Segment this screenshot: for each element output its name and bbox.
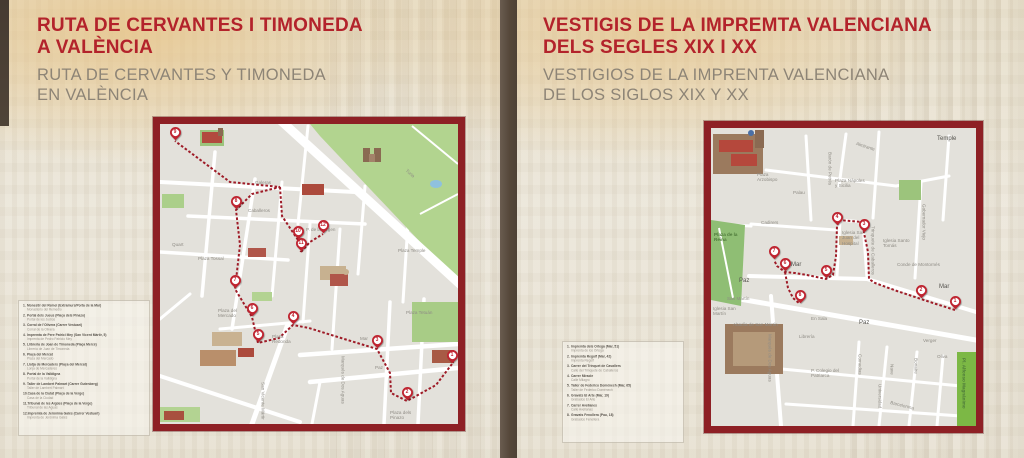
legend-item-name-es: Taller de Lambert Palmart (27, 387, 145, 391)
left-legend-list: 1.Monestir del Remei (Extramurs/Porta de… (23, 304, 145, 420)
legend-item-name-es: Portal de los Judíos (27, 318, 145, 322)
route-pin: 1 (950, 296, 961, 311)
pin-number: 12 (318, 222, 329, 228)
legend-item-name-es: Imprenta de Pedro Patricio Mey (27, 338, 145, 342)
pin-number: 3 (859, 221, 870, 227)
street-label: Plaza Arzobispo (757, 172, 787, 183)
street-label: Librería (799, 334, 815, 339)
left-subtitle-line2: EN VALÈNCIA (37, 85, 477, 105)
street-label: Temple (937, 136, 956, 143)
right-legend-list: 1.Impremta dels Ortega (Mar, 51) Imprent… (567, 345, 679, 422)
street-label: Mar (939, 284, 949, 291)
legend-item: 4.Impremta de Pere Patrici Mey (San Vice… (23, 333, 145, 341)
left-title-line2: A VALÈNCIA (37, 37, 477, 59)
legend-item: 7.Llotja de Mercaders (Plaça del Mercat)… (23, 363, 145, 371)
route-pin: 4 (832, 212, 843, 227)
right-panel-header: VESTIGIS DE LA IMPREMTA VALENCIANA DELS … (543, 15, 1003, 105)
legend-item: 3.Carrer del Trinquet de Cavallers Calle… (567, 365, 679, 373)
street-label: San Vicente Mártir (260, 382, 265, 420)
route-pin: 6 (780, 258, 791, 273)
legend-item-name-es: Plaza del Mercado (27, 357, 145, 361)
street-label: Plaza Tetuán (406, 310, 436, 315)
street-label: Galeras (255, 180, 271, 185)
pin-number: 4 (832, 214, 843, 220)
street-label: Paz (375, 365, 383, 370)
route-pin: 2 (402, 387, 413, 402)
legend-item: 5.Llibreria de Joan de Timoneda (Plaça M… (23, 343, 145, 351)
legend-item: 6.Gravats El Arte (Mar, 19) Grabados El … (567, 394, 679, 402)
street-label: Verger (923, 338, 937, 343)
left-title-line1: RUTA DE CERVANTES I TIMONEDA (37, 15, 477, 37)
pond (430, 180, 442, 188)
left-panel-subtitle: RUTA DE CERVANTES Y TIMONEDA EN VALÈNCIA (37, 65, 477, 105)
street-label: Caballeros (248, 208, 270, 213)
street-label: Quart (172, 242, 184, 247)
legend-item-name-es: Grabados Fenollera (571, 418, 679, 422)
pin-number: 7 (769, 248, 780, 254)
route-pin: 12 (318, 220, 329, 235)
street-label: Marqués de Dos Aguas (340, 356, 345, 404)
street-label: Plaza Temple (398, 248, 428, 253)
legend-item-name-es: Calle del Trinquete de Caballeros (571, 369, 679, 373)
street-label: Barón de Petrés (827, 152, 832, 185)
street-label: Universidad (877, 384, 882, 408)
route-pin: 11 (296, 238, 307, 253)
left-panel-header: RUTA DE CERVANTES I TIMONEDA A VALÈNCIA … (37, 15, 477, 105)
street-label: Conde de Montornés (897, 262, 940, 267)
legend-item: 8.Portal de la Valldigna Portal de la Va… (23, 373, 145, 381)
right-panel-subtitle: VESTIGIOS DE LA IMPRENTA VALENCIANA DE L… (543, 65, 1003, 105)
legend-item: 2.Portal dels Jueus (Plaça dels Pinazo) … (23, 314, 145, 322)
street-label: Palau (793, 190, 805, 195)
right-route-legend: 1.Impremta dels Ortega (Mar, 51) Imprent… (562, 341, 684, 443)
pin-number: 10 (293, 228, 304, 234)
street-label: Mar (791, 262, 801, 269)
legend-item-name-es: Calle Milagro (571, 379, 679, 383)
street-label: Plaza del Mercado (218, 308, 248, 319)
legend-item-name-es: Librería de Juan de Timoneda (27, 347, 145, 351)
legend-item-name-es: Imprenta de los Ortega (571, 349, 679, 353)
street-label: Paz (739, 278, 749, 285)
legend-item-name-es: Casa de la Ciudad (27, 396, 145, 400)
route-pin: 5 (821, 265, 832, 280)
route-pin: 8 (795, 290, 806, 305)
legend-item-name-es: Imprenta de Jerónima Galés (27, 416, 145, 420)
right-route-map: Temple Plaza Arzobispo Palau Plaza Nápol… (704, 121, 983, 433)
alfonso-magnanimo-garden (957, 352, 976, 426)
legend-item-name-es: Tribunal de las Aguas (27, 406, 145, 410)
legend-item-name-es: Taller de Federico Doménech (571, 388, 679, 392)
left-edge-strip (0, 0, 9, 126)
exhibition-panel: RUTA DE CERVANTES I TIMONEDA A VALÈNCIA … (0, 0, 1024, 458)
street-label: P. Colegio del Patriarca (811, 368, 841, 379)
street-label: Comedias (857, 354, 862, 375)
street-label: Paz (859, 320, 869, 327)
legend-item-name-es: Corral de la Olivera (27, 328, 145, 332)
street-label: Plaza dels Pinazo (390, 410, 420, 421)
pin-number: 7 (230, 277, 241, 283)
street-label: Iglesia San Martín (713, 306, 743, 317)
legend-item-name-es: Grabados El Arte (571, 398, 679, 402)
legend-item-name-es: Portal de la Valldigna (27, 377, 145, 381)
legend-item: 3.Corral de l'Olivera (Carrer Vestuari) … (23, 324, 145, 332)
left-route-legend: 1.Monestir del Remei (Extramurs/Porta de… (18, 300, 150, 436)
left-subtitle-line1: RUTA DE CERVANTES Y TIMONEDA (37, 65, 477, 85)
route-pin: 8 (231, 196, 242, 211)
street-label: Pl. Alfonso Magnánimo (961, 358, 966, 409)
street-label: Marqués de Dos Aguas (767, 334, 772, 382)
route-pin: 2 (916, 285, 927, 300)
legend-item: 1.Monestir del Remei (Extramurs/Porta de… (23, 304, 145, 312)
street-label: Plaza Redonda (272, 334, 302, 345)
legend-item: 2.Impremta Regolf (Mar, 42) Imprenta Reg… (567, 355, 679, 363)
right-panel-title: VESTIGIS DE LA IMPREMTA VALENCIANA DELS … (543, 15, 1003, 59)
parterre-garden (412, 302, 458, 342)
legend-item: 7.Carrer Avellanes Calle Avellanas (567, 404, 679, 412)
street-label: Plaza Nápoles y Sicilia (835, 178, 865, 189)
street-label: Abadía de San Martín (733, 322, 778, 327)
legend-item: 1.Impremta dels Ortega (Mar, 51) Imprent… (567, 345, 679, 353)
street-label: Trinquete de Caballeros (870, 226, 875, 275)
street-label: Plaza de la Reina (714, 232, 744, 243)
route-pin: 7 (769, 246, 780, 261)
street-label: Plaza Tossal (198, 256, 228, 261)
pin-number: 6 (247, 305, 258, 311)
legend-item-name-es: Calle Avellanas (571, 408, 679, 412)
street-label: Iglesia Santo Tomás (883, 238, 913, 249)
legend-item: 4.Carrer Miracle Calle Milagro (567, 374, 679, 382)
legend-item-name-es: Imprenta Regolf (571, 359, 679, 363)
street-label: Bonaire (913, 358, 918, 374)
route-pin: 3 (859, 219, 870, 234)
street-label: Cadirers (761, 220, 778, 225)
route-pin: 9 (170, 127, 181, 142)
route-pin: 4 (288, 311, 299, 326)
street-label: Gobernador Viejo (921, 204, 926, 240)
pin-number: 5 (821, 267, 832, 273)
route-pin: 5 (253, 329, 264, 344)
mercado-central-illustration (200, 350, 236, 366)
route-pin: 7 (230, 275, 241, 290)
legend-item: 10.Casa de la Ciutat (Plaça de la Verge)… (23, 392, 145, 400)
route-pin: 3 (372, 335, 383, 350)
pin-number: 6 (780, 260, 791, 266)
pin-number: 8 (795, 292, 806, 298)
route-pin: 6 (247, 303, 258, 318)
pin-number: 9 (170, 129, 181, 135)
pin-number: 1 (950, 298, 961, 304)
pin-number: 11 (296, 240, 307, 246)
pin-number: 2 (916, 287, 927, 293)
pin-number: 2 (402, 389, 413, 395)
right-map-basemap (711, 128, 976, 426)
lonja-illustration (212, 332, 242, 346)
legend-item-name-es: Lonja de Mercaderes (27, 367, 145, 371)
street-label: Nave (889, 364, 894, 375)
legend-item: 8.Gravats Fenollera (Pau, 18) Grabados F… (567, 414, 679, 422)
street-label: San Martín (727, 296, 749, 301)
street-label: Mar (360, 336, 368, 341)
torres-serranos-illustration (363, 148, 370, 162)
pin-number: 4 (288, 313, 299, 319)
legend-item: 9.Taller de Lambert Palmart (Carrer Gute… (23, 382, 145, 390)
left-map-basemap (160, 124, 458, 424)
center-divider (500, 0, 517, 458)
right-title-line1: VESTIGIS DE LA IMPREMTA VALENCIANA (543, 15, 1003, 37)
legend-item-name-es: Monasterio del Remedio (27, 308, 145, 312)
street-label: Oliva (937, 354, 947, 359)
legend-item: 6.Plaça del Mercat Plaza del Mercado (23, 353, 145, 361)
pin-number: 8 (231, 198, 242, 204)
right-subtitle-line1: VESTIGIOS DE LA IMPRENTA VALENCIANA (543, 65, 1003, 85)
left-panel-title: RUTA DE CERVANTES I TIMONEDA A VALÈNCIA (37, 15, 477, 59)
left-route-map: Galeras Caballeros Quart Plaza Tossal Pl… (153, 117, 465, 431)
right-title-line2: DELS SEGLES XIX I XX (543, 37, 1003, 59)
pin-number: 3 (372, 337, 383, 343)
right-subtitle-line2: DE LOS SIGLOS XIX Y XX (543, 85, 1003, 105)
legend-item: 12.Impremta de Jerònima Galés (Carrer Ve… (23, 412, 145, 420)
pin-number: 5 (253, 331, 264, 337)
route-pin: 1 (447, 350, 458, 365)
legend-item: 5.Taller de Federico Doménech (Mar, 65) … (567, 384, 679, 392)
street-label: En Sala (811, 316, 827, 321)
legend-item: 11.Tribunal de les Aigües (Plaça de la V… (23, 402, 145, 410)
pin-number: 1 (447, 352, 458, 358)
